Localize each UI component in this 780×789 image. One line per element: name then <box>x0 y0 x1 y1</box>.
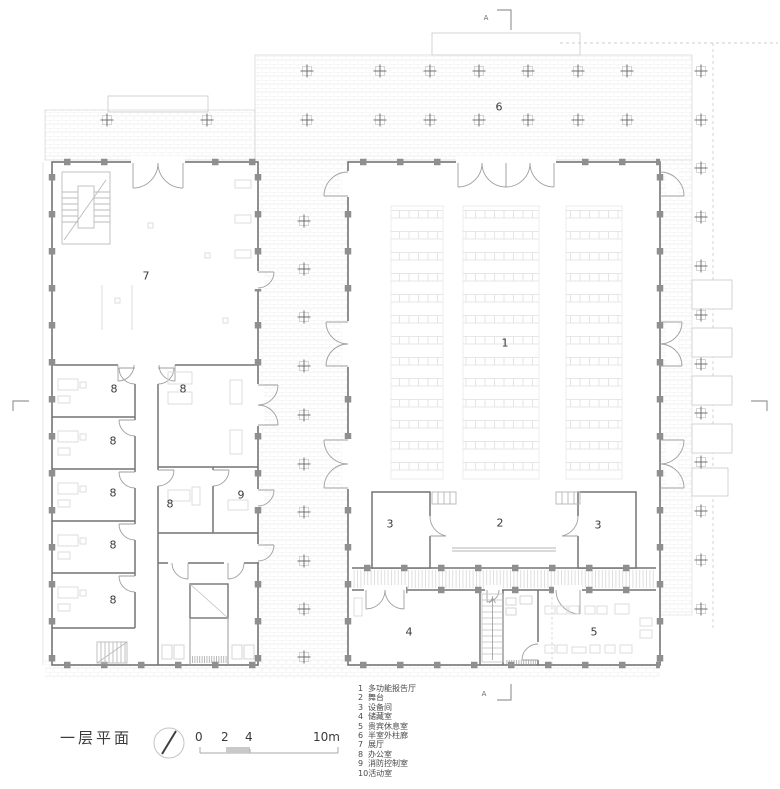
compass-needle-icon <box>162 731 176 754</box>
section-letter-top: A <box>484 14 489 22</box>
legend-item-6: 6半室外柱廊 <box>358 731 416 740</box>
floor-plan-page: 1 2 3 3 4 5 6 7 8 8 8 8 8 8 8 9 A A 一层平面… <box>0 0 780 789</box>
room-label-office-5: 8 <box>110 594 117 607</box>
legend-item-1: 1多功能报告厅 <box>358 684 416 693</box>
legend-item-9: 9消防控制室 <box>358 759 416 768</box>
room-label-office-1: 8 <box>111 383 118 396</box>
right-facade-bays <box>692 280 732 496</box>
room-label-exhibition: 7 <box>143 270 150 283</box>
room-label-office-6: 8 <box>180 383 187 396</box>
legend-item-3: 3设备间 <box>358 703 416 712</box>
north-arrow <box>154 728 184 758</box>
room-label-hall: 1 <box>502 337 509 350</box>
scale-label-10m: 10m <box>313 730 340 744</box>
scale-bar <box>200 747 338 753</box>
room-label-office-2: 8 <box>110 435 117 448</box>
legend-item-5: 5贵宾休息室 <box>358 722 416 731</box>
room-label-stage: 2 <box>497 517 504 530</box>
legend: 1多功能报告厅 2舞台 3设备间 4储藏室 5贵宾休息室 6半室外柱廊 7展厅 … <box>358 684 416 778</box>
section-letter-bottom: A <box>482 690 487 698</box>
left-building <box>52 156 278 665</box>
room-label-equipment-left: 3 <box>387 518 394 531</box>
legend-item-2: 2舞台 <box>358 693 416 702</box>
room-label-office-4: 8 <box>110 539 117 552</box>
legend-item-10: 10活动室 <box>358 769 416 778</box>
right-building <box>324 156 684 666</box>
room-label-fire-control: 9 <box>238 489 245 502</box>
room-label-vip: 5 <box>591 626 598 639</box>
scale-label-2: 2 <box>221 730 229 744</box>
legend-item-4: 4储藏室 <box>358 712 416 721</box>
scale-label-4: 4 <box>245 730 253 744</box>
room-label-office-3: 8 <box>110 487 117 500</box>
legend-item-7: 7展厅 <box>358 740 416 749</box>
scale-label-0: 0 <box>195 730 203 744</box>
page-title: 一层平面 <box>60 727 132 748</box>
room-label-colonnade: 6 <box>496 101 503 114</box>
room-label-storage: 4 <box>406 626 413 639</box>
room-label-equipment-right: 3 <box>595 519 602 532</box>
legend-item-8: 8办公室 <box>358 750 416 759</box>
room-label-office-7: 8 <box>167 498 174 511</box>
